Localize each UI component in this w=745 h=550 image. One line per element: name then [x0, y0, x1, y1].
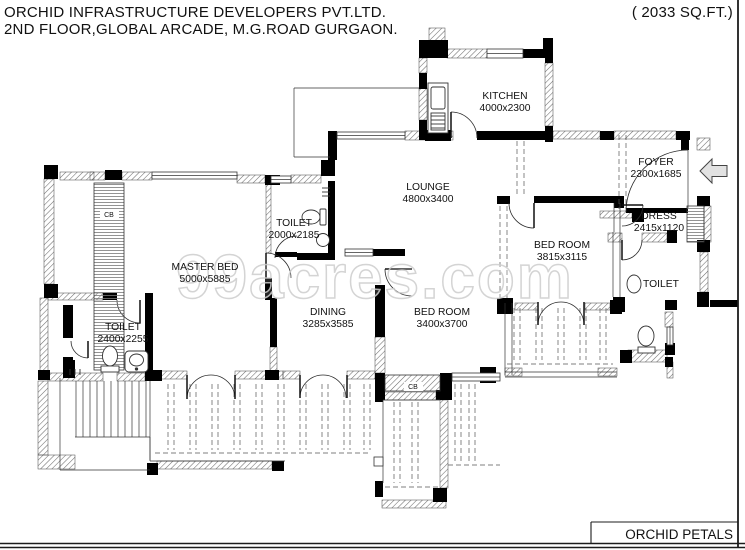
room-label-kitchen: KITCHEN — [482, 91, 527, 102]
master-toilet-wc-icon — [101, 346, 119, 372]
room-dims-lounge: 4800x3400 — [403, 194, 454, 205]
cupboard-label-bedroom: CB — [408, 384, 418, 391]
kitchen-sink-counter — [428, 83, 448, 133]
cupboard-label-master: CB — [104, 212, 114, 219]
company-name-line1: ORCHID INFRASTRUCTURE DEVELOPERS PVT.LTD… — [4, 4, 386, 21]
room-label-dining: DINING — [310, 307, 346, 318]
room-dims-kitchen: 4000x2300 — [480, 103, 531, 114]
room-dims-master-bed: 5000x5885 — [180, 274, 231, 285]
company-address-line2: 2ND FLOOR,GLOBAL ARCADE, M.G.ROAD GURGAO… — [4, 21, 398, 38]
room-label-bedroom-bottom: BED ROOM — [414, 307, 470, 318]
room-label-master-bed: MASTER BED — [172, 262, 239, 273]
fixtures-layer — [70, 83, 727, 375]
room-label-dress: DRESS — [641, 211, 677, 222]
room-dims-bedroom-right: 3815x3115 — [537, 252, 587, 263]
dress-wardrobe — [687, 206, 704, 242]
room-dims-dress: 2415x1120 — [634, 223, 684, 234]
master-toilet-basin-icon — [125, 351, 148, 372]
room-label-bedroom-right: BED ROOM — [534, 240, 590, 251]
entry-arrow-icon — [700, 159, 727, 183]
watermark: 99acres.com — [176, 243, 574, 312]
room-label-toilet-upper: TOILET — [276, 218, 313, 229]
floor-plan-page: 99acres.com KITCHEN 4000x2300 FOYER 2300… — [0, 0, 745, 550]
floor-plan-canvas: 99acres.com KITCHEN 4000x2300 FOYER 2300… — [0, 0, 745, 550]
room-label-lounge: LOUNGE — [406, 182, 450, 193]
windows-layer — [152, 49, 673, 381]
room-label-toilet-master: TOILET — [105, 322, 142, 333]
room-dims-bedroom-bottom: 3400x3700 — [417, 319, 468, 330]
area-label: ( 2033 SQ.FT.) — [632, 4, 733, 21]
project-name: ORCHID PETALS — [625, 527, 733, 542]
right-toilet-basin-icon — [627, 275, 641, 293]
room-dims-toilet-master: 2400x2255 — [98, 334, 149, 345]
room-dims-dining: 3285x3585 — [303, 319, 354, 330]
room-dims-toilet-upper: 2000x2185 — [269, 230, 320, 241]
room-label-toilet-right: TOILET — [643, 279, 680, 290]
room-dims-foyer: 2300x1685 — [631, 169, 682, 180]
right-toilet-wc-icon — [638, 326, 655, 353]
room-label-foyer: FOYER — [638, 157, 673, 168]
